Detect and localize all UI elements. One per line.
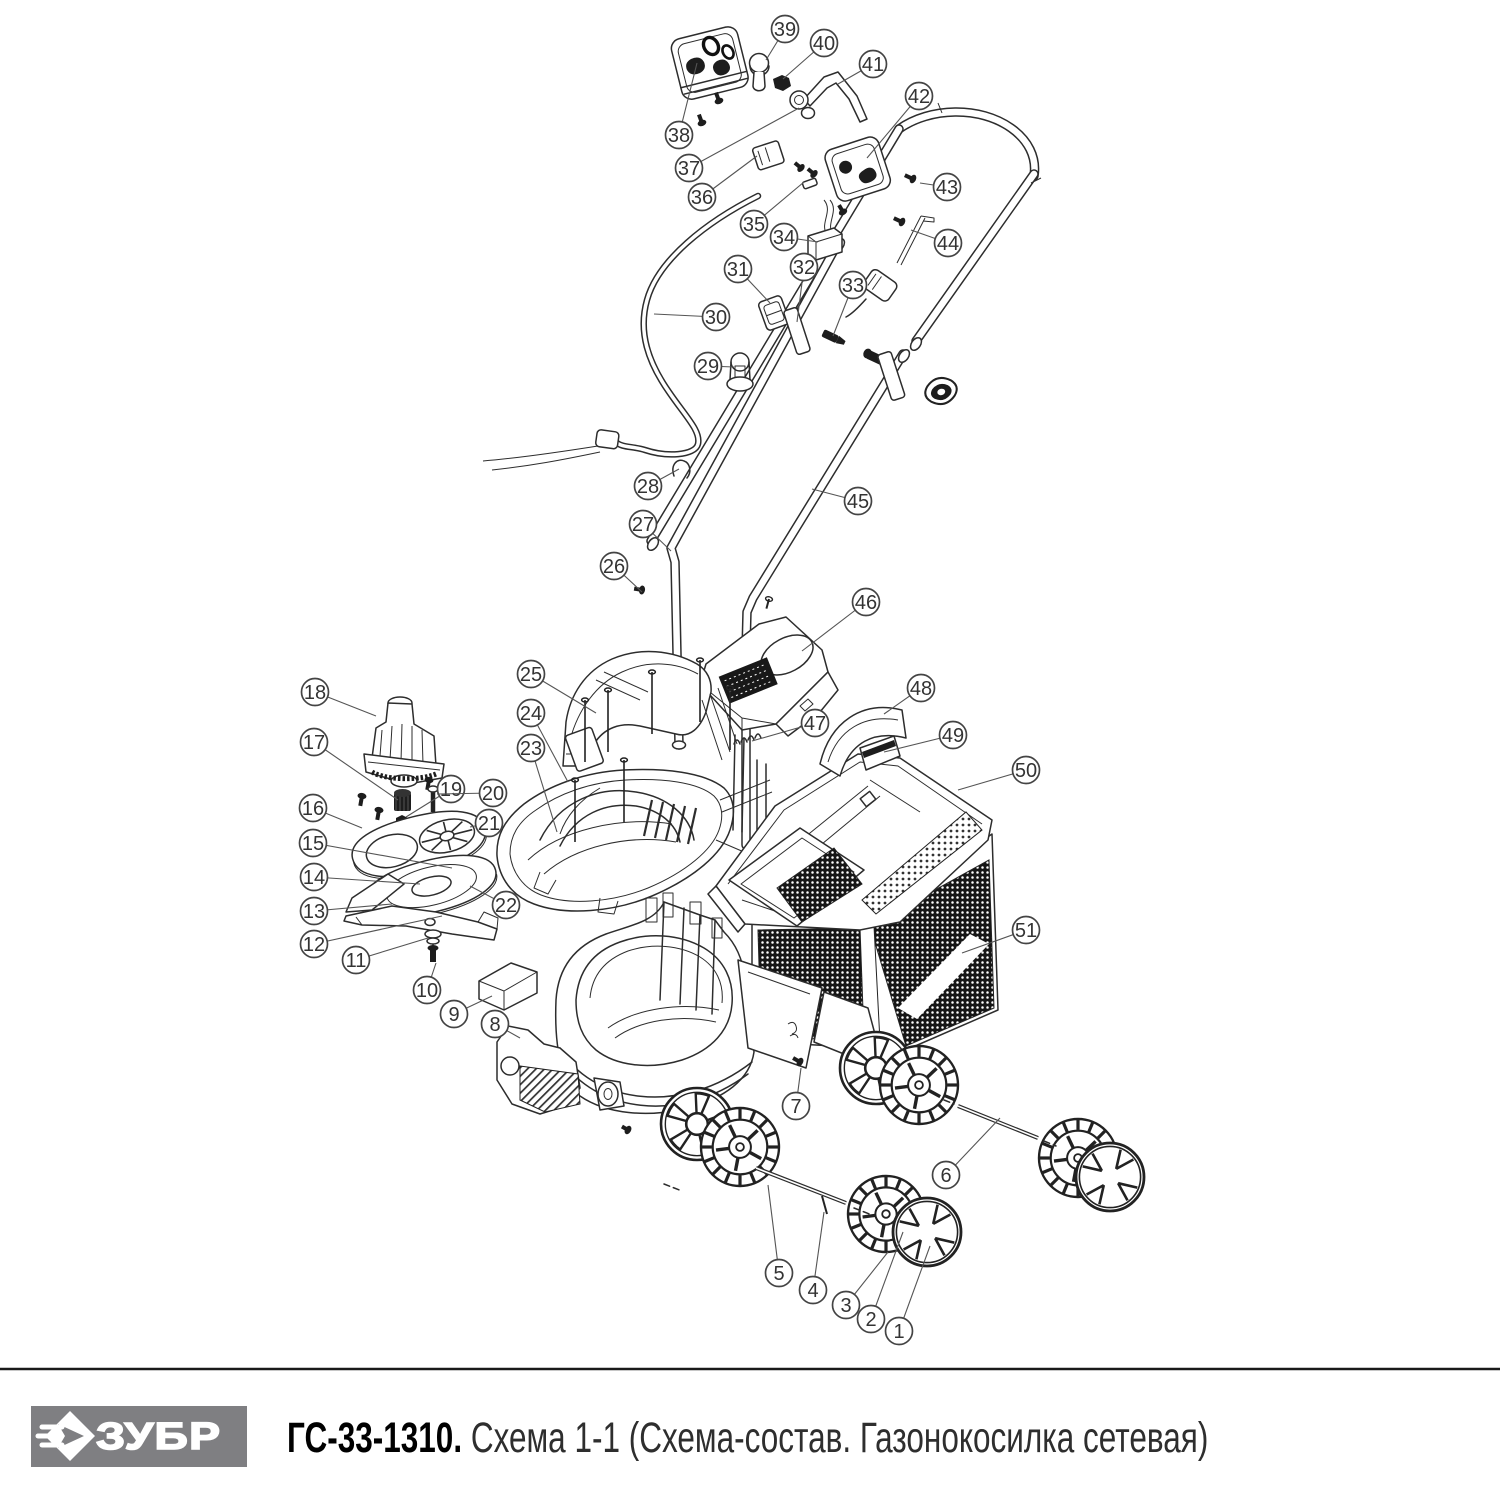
svg-text:13: 13: [303, 901, 325, 923]
svg-text:28: 28: [637, 476, 659, 498]
svg-text:33: 33: [842, 275, 864, 297]
svg-text:19: 19: [440, 779, 462, 801]
svg-text:12: 12: [303, 934, 325, 956]
svg-text:45: 45: [847, 491, 869, 513]
svg-text:46: 46: [855, 592, 877, 614]
svg-text:47: 47: [804, 713, 826, 735]
svg-text:16: 16: [302, 798, 324, 820]
svg-text:18: 18: [304, 682, 326, 704]
svg-text:23: 23: [520, 738, 542, 760]
svg-text:22: 22: [495, 895, 517, 917]
svg-text:43: 43: [936, 177, 958, 199]
svg-text:30: 30: [705, 307, 727, 329]
svg-text:24: 24: [520, 703, 542, 725]
svg-text:ЗУБР: ЗУБР: [96, 1415, 221, 1457]
svg-text:14: 14: [303, 867, 325, 889]
svg-text:11: 11: [346, 950, 367, 972]
svg-text:1: 1: [893, 1321, 904, 1343]
svg-text:8: 8: [489, 1014, 500, 1036]
svg-text:2: 2: [865, 1309, 876, 1331]
svg-text:6: 6: [940, 1165, 951, 1187]
svg-text:4: 4: [807, 1280, 818, 1302]
svg-text:40: 40: [813, 33, 835, 55]
svg-text:ГС-33-1310. Схема 1-1 (Схема-с: ГС-33-1310. Схема 1-1 (Схема-состав. Газ…: [287, 1413, 1208, 1461]
svg-text:51: 51: [1015, 920, 1037, 942]
svg-text:10: 10: [416, 980, 438, 1002]
svg-text:20: 20: [482, 783, 504, 805]
svg-text:48: 48: [910, 678, 932, 700]
svg-text:49: 49: [942, 725, 964, 747]
svg-text:29: 29: [697, 356, 719, 378]
svg-text:27: 27: [632, 514, 654, 536]
svg-text:15: 15: [302, 833, 324, 855]
svg-text:7: 7: [790, 1096, 801, 1118]
svg-text:9: 9: [448, 1004, 459, 1026]
svg-text:44: 44: [937, 233, 959, 255]
svg-text:35: 35: [743, 214, 765, 236]
svg-text:5: 5: [773, 1263, 784, 1285]
svg-text:39: 39: [774, 19, 796, 41]
svg-text:3: 3: [840, 1295, 851, 1317]
svg-text:21: 21: [478, 813, 500, 835]
svg-text:25: 25: [520, 664, 542, 686]
svg-text:32: 32: [793, 257, 815, 279]
svg-text:17: 17: [303, 732, 325, 754]
svg-text:50: 50: [1015, 760, 1037, 782]
svg-text:37: 37: [678, 158, 700, 180]
svg-text:34: 34: [773, 227, 795, 249]
svg-text:36: 36: [691, 187, 713, 209]
svg-text:31: 31: [727, 259, 749, 281]
svg-text:41: 41: [862, 54, 884, 76]
svg-text:38: 38: [668, 125, 690, 147]
svg-text:42: 42: [908, 86, 930, 108]
svg-text:26: 26: [603, 556, 625, 578]
